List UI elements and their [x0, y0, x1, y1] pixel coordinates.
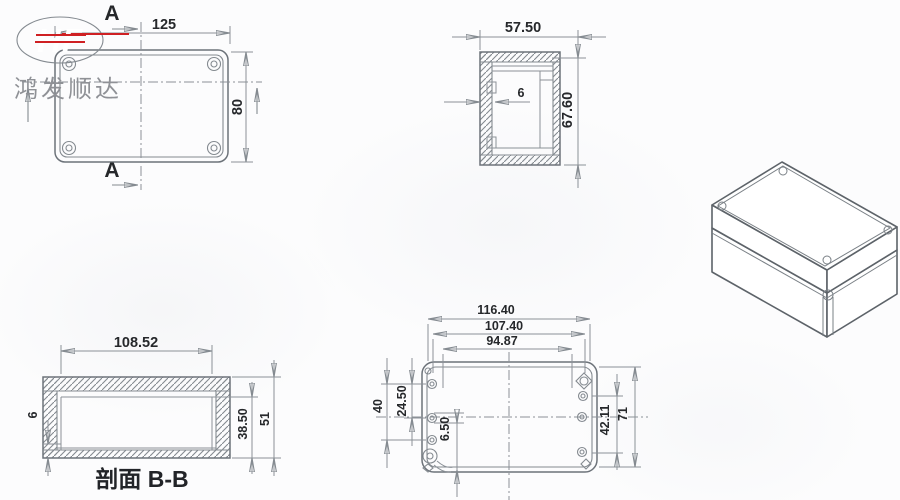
svg-text:108.52: 108.52: [114, 335, 158, 351]
svg-text:94.87: 94.87: [486, 334, 517, 348]
svg-text:71: 71: [616, 407, 630, 421]
engineering-drawing: A A 125 80: [0, 0, 900, 500]
side-section-view: 57.50 67.60 6: [444, 20, 606, 188]
corner-screw: [63, 58, 76, 71]
section-letter-top: A: [104, 2, 119, 25]
svg-text:6: 6: [518, 86, 525, 100]
svg-text:67.60: 67.60: [560, 92, 576, 128]
section-bb-view: 108.52 6 38.50 51 剖面 B-B: [26, 335, 281, 492]
svg-text:80: 80: [230, 99, 246, 115]
logo: HF 鸿发顺达: [14, 17, 129, 103]
logo-company-name: 鸿发顺达: [14, 75, 122, 103]
svg-text:42.11: 42.11: [598, 405, 612, 436]
svg-text:40: 40: [371, 399, 385, 413]
svg-text:6: 6: [26, 411, 40, 418]
svg-text:24.50: 24.50: [395, 385, 409, 416]
top-view-inner-outline: [60, 55, 223, 157]
isometric-view: [712, 162, 897, 337]
mounting-holes-right: [576, 373, 592, 469]
svg-text:51: 51: [258, 412, 272, 426]
dim-width-5750: 57.50: [452, 20, 606, 50]
drawing-sheet: A A 125 80: [0, 0, 900, 500]
dim-inner-9487: 94.87: [443, 334, 572, 388]
corner-screw: [208, 58, 221, 71]
svg-text:116.40: 116.40: [477, 303, 515, 317]
svg-text:38.50: 38.50: [236, 408, 250, 439]
logo-brand: HF: [37, 22, 83, 59]
section-caption: 剖面 B-B: [95, 466, 188, 492]
corner-screw: [63, 142, 76, 155]
corner-screw: [208, 142, 221, 155]
section-letter-bottom: A: [104, 159, 119, 182]
svg-text:6.50: 6.50: [438, 417, 452, 441]
dim-width-10852: 108.52: [61, 335, 212, 374]
dim-height-80: 80: [230, 52, 253, 162]
svg-text:57.50: 57.50: [505, 20, 541, 36]
svg-text:125: 125: [152, 17, 176, 33]
bottom-view: 116.40 107.40 94.87 40 24.50: [371, 303, 648, 500]
dim-hole-650: 6.50: [434, 413, 464, 497]
svg-text:107.40: 107.40: [485, 319, 523, 333]
